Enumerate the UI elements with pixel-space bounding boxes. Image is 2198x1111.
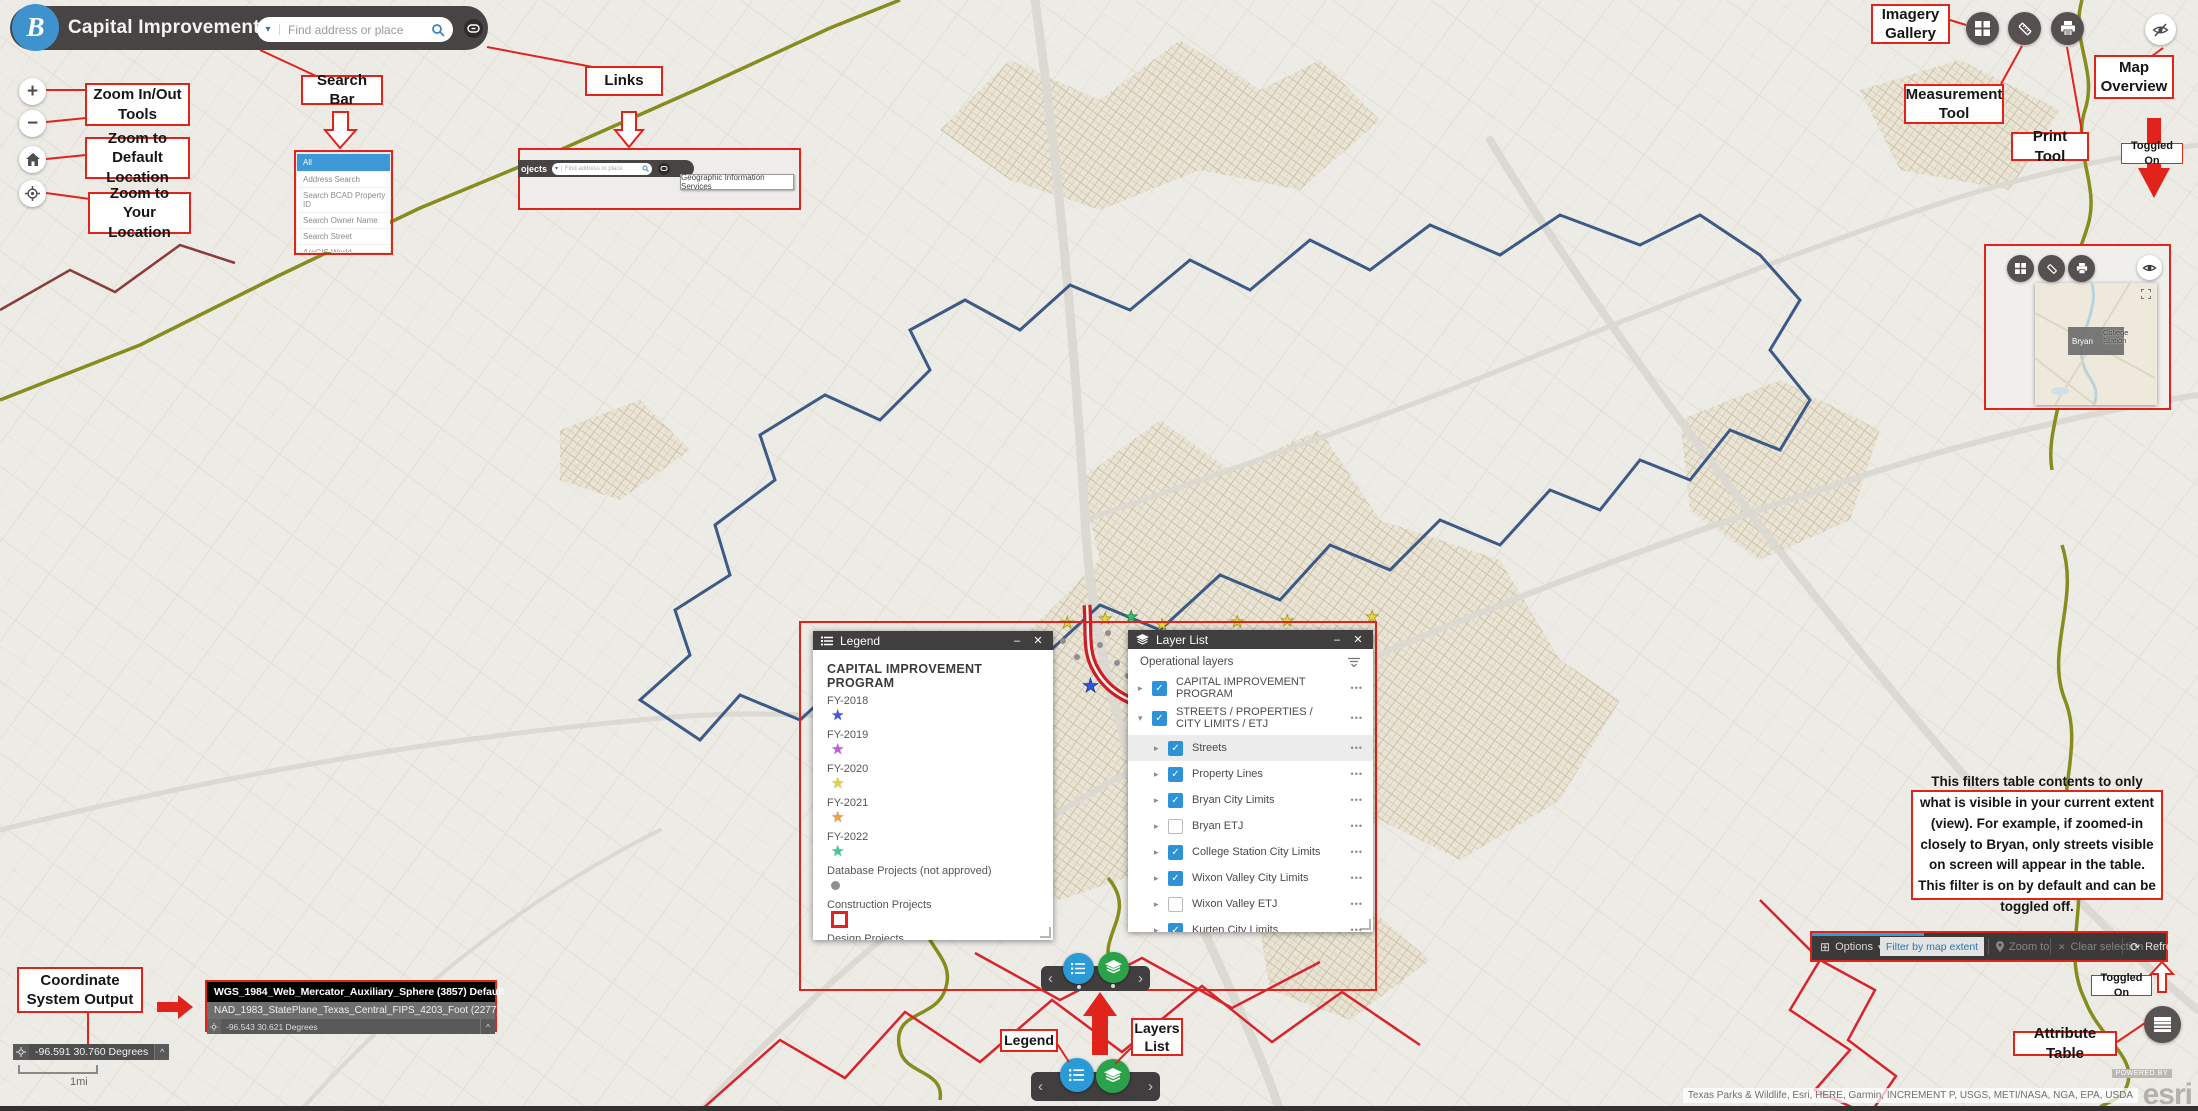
city-logo: B xyxy=(12,4,59,51)
collapse-caret-icon[interactable] xyxy=(154,1044,169,1060)
map-attribution: Texas Parks & Wildlife, Esri, HERE, Garm… xyxy=(1683,1088,2138,1103)
attribute-toolbar-frame: Options Filter by map extent Zoom to Cle… xyxy=(1810,931,2168,962)
more-options-icon[interactable] xyxy=(1351,899,1363,909)
expand-caret-icon[interactable] xyxy=(1154,743,1168,754)
legend-item: FY-2019 xyxy=(827,729,1039,758)
layer-checkbox[interactable] xyxy=(1168,845,1183,860)
mini-title-fragment: ojects xyxy=(518,164,547,174)
expand-caret-icon[interactable] xyxy=(1138,683,1152,694)
layer-row[interactable]: Streets xyxy=(1128,735,1373,761)
printer-icon xyxy=(2076,263,2088,274)
close-button[interactable] xyxy=(1351,633,1365,646)
search-bar[interactable]: Find address or place xyxy=(257,17,453,42)
annotation-coordinate-output: Coordinate System Output xyxy=(17,967,143,1013)
annotation-toggled-on-bottom: Toggled On xyxy=(2091,975,2152,996)
layers-icon xyxy=(1105,960,1122,975)
collapse-caret-icon[interactable]: ^ xyxy=(480,1019,495,1034)
annotation-toggled-on-top: Toggled On xyxy=(2121,143,2183,164)
more-options-icon[interactable] xyxy=(1351,873,1363,883)
coordinate-value: -96.543 30.621 Degrees xyxy=(221,1022,480,1032)
layer-row[interactable]: CAPITAL IMPROVEMENT PROGRAM xyxy=(1128,675,1373,701)
zoom-out-button[interactable]: − xyxy=(19,110,46,137)
annotation-filter-note: This filters table contents to only what… xyxy=(1911,790,2163,900)
locate-icon xyxy=(25,186,40,201)
coordinate-popup-frame: WGS_1984_Web_Mercator_Auxiliary_Sphere (… xyxy=(205,980,497,1032)
search-source-caret-icon[interactable] xyxy=(257,24,280,35)
expand-caret-icon[interactable] xyxy=(1154,899,1168,910)
grid-icon xyxy=(2015,263,2026,274)
search-dropdown: All Address Search Search BCAD Property … xyxy=(297,154,390,252)
layer-list-window: Layer List Operational layers CAPITAL IM… xyxy=(1128,630,1373,932)
legend-item: Design Projects xyxy=(827,933,1039,940)
search-icon[interactable] xyxy=(423,23,453,37)
layer-row[interactable]: Bryan City Limits xyxy=(1128,787,1373,813)
scale-bar: 1mi xyxy=(18,1064,108,1088)
layers-icon xyxy=(1104,1068,1122,1084)
layer-row[interactable]: Wixon Valley ETJ xyxy=(1128,891,1373,917)
link-icon xyxy=(467,24,480,33)
home-icon xyxy=(26,153,40,166)
layer-checkbox[interactable] xyxy=(1168,923,1183,933)
legend-window: Legend CAPITAL IMPROVEMENT PROGRAM FY-20… xyxy=(813,631,1053,940)
mini-search-placeholder: Find address or place xyxy=(562,166,642,172)
legend-window-titlebar[interactable]: Legend xyxy=(813,631,1053,650)
crosshair-icon[interactable] xyxy=(207,1019,221,1034)
x-icon xyxy=(2058,941,2066,953)
more-options-icon[interactable] xyxy=(1351,795,1363,805)
pin-icon xyxy=(1996,941,2004,952)
operational-layers-row: Operational layers xyxy=(1128,649,1373,675)
star-icon xyxy=(831,741,1039,758)
links-mini-header: ojects ▾ Find address or place xyxy=(518,160,694,177)
chevron-right-icon[interactable] xyxy=(1141,1079,1160,1094)
annotation-layers-list: Layers List xyxy=(1131,1018,1183,1056)
zoom-to-button[interactable]: Zoom to xyxy=(1996,933,2049,960)
more-options-icon[interactable] xyxy=(1351,769,1363,779)
dropdown-item-all[interactable]: All xyxy=(297,154,390,172)
print-tool-button[interactable] xyxy=(2051,12,2084,45)
plus-icon: + xyxy=(27,82,38,101)
legend-item: FY-2018 xyxy=(827,695,1039,724)
star-icon xyxy=(831,707,1039,724)
coordinate-readout-row: -96.543 30.621 Degrees ^ xyxy=(207,1019,495,1034)
inset-imagery-button xyxy=(2007,255,2034,282)
grid-icon xyxy=(1975,21,1990,36)
imagery-gallery-button[interactable] xyxy=(1966,12,1999,45)
dropdown-item-bcad[interactable]: Search BCAD Property ID xyxy=(297,188,390,213)
eye-icon xyxy=(2142,262,2157,274)
measurement-tool-button[interactable] xyxy=(2008,12,2041,45)
powered-by-label: POWERED BY xyxy=(2112,1069,2172,1078)
more-options-icon[interactable] xyxy=(1351,713,1363,723)
annotation-attribute-table: Attribute Table xyxy=(2013,1031,2117,1056)
annotation-zoom-default: Zoom to Default Location xyxy=(85,137,190,179)
layer-checkbox[interactable] xyxy=(1168,819,1183,834)
minus-icon: − xyxy=(27,114,38,133)
star-icon xyxy=(831,843,1039,860)
overview-city1-label: Bryan xyxy=(2072,337,2093,346)
layer-checkbox[interactable] xyxy=(1168,793,1183,808)
inset-measure-button xyxy=(2038,255,2065,282)
layers-icon xyxy=(1136,634,1149,645)
dock-page-dot xyxy=(1077,985,1081,989)
layer-checkbox[interactable] xyxy=(1168,897,1183,912)
layer-row[interactable]: Bryan ETJ xyxy=(1128,813,1373,839)
annotation-zoom-tools: Zoom In/Out Tools xyxy=(85,83,190,126)
chevron-left-icon[interactable] xyxy=(1031,1079,1050,1094)
options-menu-button[interactable]: Options xyxy=(1820,933,1883,960)
more-options-icon[interactable] xyxy=(1351,743,1363,753)
legend-icon xyxy=(821,636,833,646)
minimize-button[interactable] xyxy=(1010,635,1024,647)
minimize-button[interactable] xyxy=(1330,634,1344,646)
coordinate-value: -96.591 30.760 Degrees xyxy=(29,1044,154,1060)
mini-links-button xyxy=(658,163,670,175)
annotation-zoom-your: Zoom to Your Location xyxy=(88,192,191,234)
attribute-toolbar: Options Filter by map extent Zoom to Cle… xyxy=(1812,933,2166,960)
ruler-icon xyxy=(2046,263,2058,275)
refresh-button[interactable]: Refresh xyxy=(2130,933,2184,960)
layers-dock-button[interactable] xyxy=(1098,952,1129,983)
layer-row[interactable]: STREETS / PROPERTIES / CITY LIMITS / ETJ xyxy=(1128,701,1373,735)
coordinate-system-option[interactable]: NAD_1983_StatePlane_Texas_Central_FIPS_4… xyxy=(207,1002,495,1019)
filter-by-map-extent-button[interactable]: Filter by map extent xyxy=(1880,937,1984,956)
dot-symbol xyxy=(831,881,840,890)
annotation-search-bar: Search Bar xyxy=(301,75,383,105)
default-extent-button[interactable] xyxy=(19,146,46,173)
legend-item: FY-2020 xyxy=(827,763,1039,792)
layer-checkbox[interactable] xyxy=(1168,767,1183,782)
layer-checkbox[interactable] xyxy=(1168,871,1183,886)
divider xyxy=(1988,938,1989,955)
more-options-icon[interactable] xyxy=(1351,821,1363,831)
annotation-imagery-gallery: Imagery Gallery xyxy=(1871,4,1950,44)
layer-list-titlebar[interactable]: Layer List xyxy=(1128,630,1373,649)
attribute-table-button[interactable] xyxy=(2144,1006,2181,1043)
expand-caret-icon[interactable] xyxy=(1154,821,1168,832)
dropdown-item-owner[interactable]: Search Owner Name xyxy=(297,213,390,229)
links-button[interactable] xyxy=(464,19,483,38)
legend-heading: CAPITAL IMPROVEMENT PROGRAM xyxy=(827,662,1039,690)
coordinate-widget: -96.591 30.760 Degrees xyxy=(13,1044,169,1060)
close-button[interactable] xyxy=(1031,634,1045,647)
legend-icon xyxy=(1071,962,1086,975)
zoom-in-button[interactable]: + xyxy=(19,78,46,105)
chevron-right-icon[interactable] xyxy=(1131,971,1150,986)
table-icon xyxy=(2154,1017,2171,1032)
collapse-all-icon[interactable] xyxy=(1347,657,1361,667)
dropdown-item-world-geocode[interactable]: ArcGIS World Geocoding Service xyxy=(297,245,390,252)
star-icon xyxy=(831,775,1039,792)
coordinate-system-default[interactable]: WGS_1984_Web_Mercator_Auxiliary_Sphere (… xyxy=(207,982,495,1002)
layer-row[interactable]: Property Lines xyxy=(1128,761,1373,787)
legend-item: FY-2021 xyxy=(827,797,1039,826)
more-options-icon[interactable] xyxy=(1351,683,1363,693)
esri-logo: esri xyxy=(2143,1082,2192,1108)
links-tooltip: Geographic Information Services xyxy=(680,174,794,190)
star-icon xyxy=(831,809,1039,826)
refresh-icon xyxy=(2130,940,2140,954)
grid-icon xyxy=(1820,940,1830,954)
layer-row[interactable]: College Station City Limits xyxy=(1128,839,1373,865)
inset-overview-toggle-on xyxy=(2137,255,2162,280)
ruler-icon xyxy=(2017,21,2033,37)
annotation-links: Links xyxy=(585,66,663,96)
crosshair-icon[interactable] xyxy=(13,1044,29,1060)
annotation-measurement-tool: Measurement Tool xyxy=(1904,84,2004,124)
mini-search-bar: ▾ Find address or place xyxy=(552,163,652,175)
annotation-print-tool: Print Tool xyxy=(2011,132,2089,161)
expand-icon[interactable] xyxy=(2141,289,2151,299)
annotation-map-overview: Map Overview xyxy=(2094,55,2174,99)
legend-dock-button[interactable] xyxy=(1060,1058,1094,1092)
legend-dock-button[interactable] xyxy=(1063,953,1094,984)
window-bottom-edge xyxy=(0,1106,2198,1111)
divider xyxy=(2050,938,2051,955)
chevron-left-icon[interactable] xyxy=(1041,971,1060,986)
mini-search-icon xyxy=(642,165,649,172)
legend-item: FY-2022 xyxy=(827,831,1039,860)
divider xyxy=(2122,938,2123,955)
dropdown-item-street[interactable]: Search Street xyxy=(297,229,390,245)
layer-checkbox[interactable] xyxy=(1152,681,1167,696)
legend-window-title: Legend xyxy=(840,634,880,648)
expand-caret-icon[interactable] xyxy=(1154,795,1168,806)
dock-page-dot xyxy=(1111,984,1115,988)
layers-dock-button[interactable] xyxy=(1096,1059,1130,1093)
my-location-button[interactable] xyxy=(19,180,46,207)
overview-map-card[interactable]: Bryan College Station xyxy=(2035,283,2157,405)
widget-dock-screenshot xyxy=(1041,966,1150,991)
layer-list-title: Layer List xyxy=(1156,633,1208,647)
overview-city2-label: College Station xyxy=(2103,329,2143,345)
legend-icon xyxy=(1069,1068,1085,1082)
layer-checkbox[interactable] xyxy=(1152,711,1167,726)
expand-caret-icon[interactable] xyxy=(1154,873,1168,884)
layer-row[interactable]: Kurten City Limits xyxy=(1128,917,1373,932)
mini-caret-icon: ▾ xyxy=(552,165,562,172)
inset-print-button xyxy=(2068,255,2095,282)
annotation-legend: Legend xyxy=(1000,1029,1058,1052)
legend-item: Database Projects (not approved) xyxy=(827,865,1039,894)
scale-bar-label: 1mi xyxy=(70,1076,108,1088)
app-window: ★ ★ ★ ★ ★ ★ ★ ★ B Capital Improvement Pr… xyxy=(0,0,2198,1111)
more-options-icon[interactable] xyxy=(1351,847,1363,857)
layer-checkbox[interactable] xyxy=(1168,741,1183,756)
search-input[interactable]: Find address or place xyxy=(280,23,423,37)
expand-caret-icon[interactable] xyxy=(1154,925,1168,933)
layer-row[interactable]: Wixon Valley City Limits xyxy=(1128,865,1373,891)
expand-caret-icon[interactable] xyxy=(1154,847,1168,858)
eye-slash-icon xyxy=(2152,22,2169,38)
expand-caret-icon[interactable] xyxy=(1154,769,1168,780)
collapse-caret-icon[interactable] xyxy=(1138,713,1152,724)
square-outline-symbol xyxy=(831,911,848,928)
resize-handle[interactable] xyxy=(1360,919,1371,930)
mini-link-icon xyxy=(660,166,668,171)
dropdown-item-address[interactable]: Address Search xyxy=(297,172,390,188)
printer-icon xyxy=(2060,21,2076,36)
map-overview-toggle-button[interactable] xyxy=(2145,14,2176,45)
legend-item: Construction Projects xyxy=(827,899,1039,928)
resize-handle[interactable] xyxy=(1040,927,1051,938)
